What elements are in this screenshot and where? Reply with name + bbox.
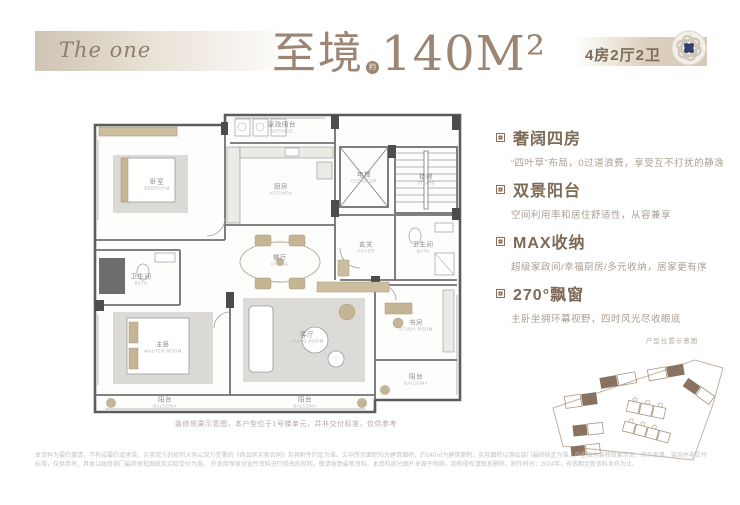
title-chinese: 至境 [272,28,364,79]
knot-logo-icon [671,30,707,66]
layout-badge: 4房2厅2卫 [585,44,661,65]
page-title: 至境约140M² [272,28,546,80]
siteplan-diagram [545,346,735,468]
feature-item: 270°飘窗 主卧坐拥环幕视野，四时风光尽收眼底 [496,281,728,325]
feature-desc: 超级家政间/幸福厨房/多元收纳，居家更有序 [511,259,728,273]
siteplan-label: 户型位置示意图 [626,335,718,345]
feature-desc: 主卧坐拥环幕视野，四时风光尽收眼底 [511,311,728,325]
brand-bar: The one [35,31,297,71]
feature-desc: “四叶草”布局，0过道浪费，享受互不打扰的静逸 [511,155,728,169]
approx-dot-icon: 约 [366,61,379,74]
legal-disclaimer: 本资料为要约邀请，不构成要约或承诺，买卖双方的权利义务以双方签署的《商品房买卖合… [35,452,707,470]
feature-title: MAX收纳 [513,229,586,253]
feature-item: 双景阳台 空间利用率和居住舒适性，从容兼享 [496,177,728,221]
disclaimer-line2: 开发商保留对宣传资料进行修改的权利，敬请留意最新资料。本资料部分图片来源于网络，… [211,462,638,468]
floorplan-drawing [85,100,465,415]
feature-title: 奢阔四房 [513,125,581,149]
poster-page: The one 至境约140M² 4房2厅2卫 奢阔四房 “四叶草”布局，0过道… [0,0,740,505]
feature-bullet-icon [496,133,505,142]
floorplan: 卧室BEDROOM 家政阳台SERVICE 厨房KITCHEN 电梯ELEVAT… [85,100,465,415]
feature-desc: 空间利用率和居住舒适性，从容兼享 [511,207,728,221]
feature-title: 270°飘窗 [513,281,584,305]
feature-item: 奢阔四房 “四叶草”布局，0过道浪费，享受互不打扰的静逸 [496,125,728,169]
feature-bullet-icon [496,185,505,194]
brand-logo-text: The one [59,38,151,62]
plan-caption: 装修效果示意图，本户型位于1号楼单元，并非交付标准，仅供参考 [140,419,432,429]
feature-bullet-icon [496,289,505,298]
feature-bullet-icon [496,237,505,246]
feature-item: MAX收纳 超级家政间/幸福厨房/多元收纳，居家更有序 [496,229,728,273]
title-area: 140M² [381,26,546,82]
feature-title: 双景阳台 [513,177,581,201]
